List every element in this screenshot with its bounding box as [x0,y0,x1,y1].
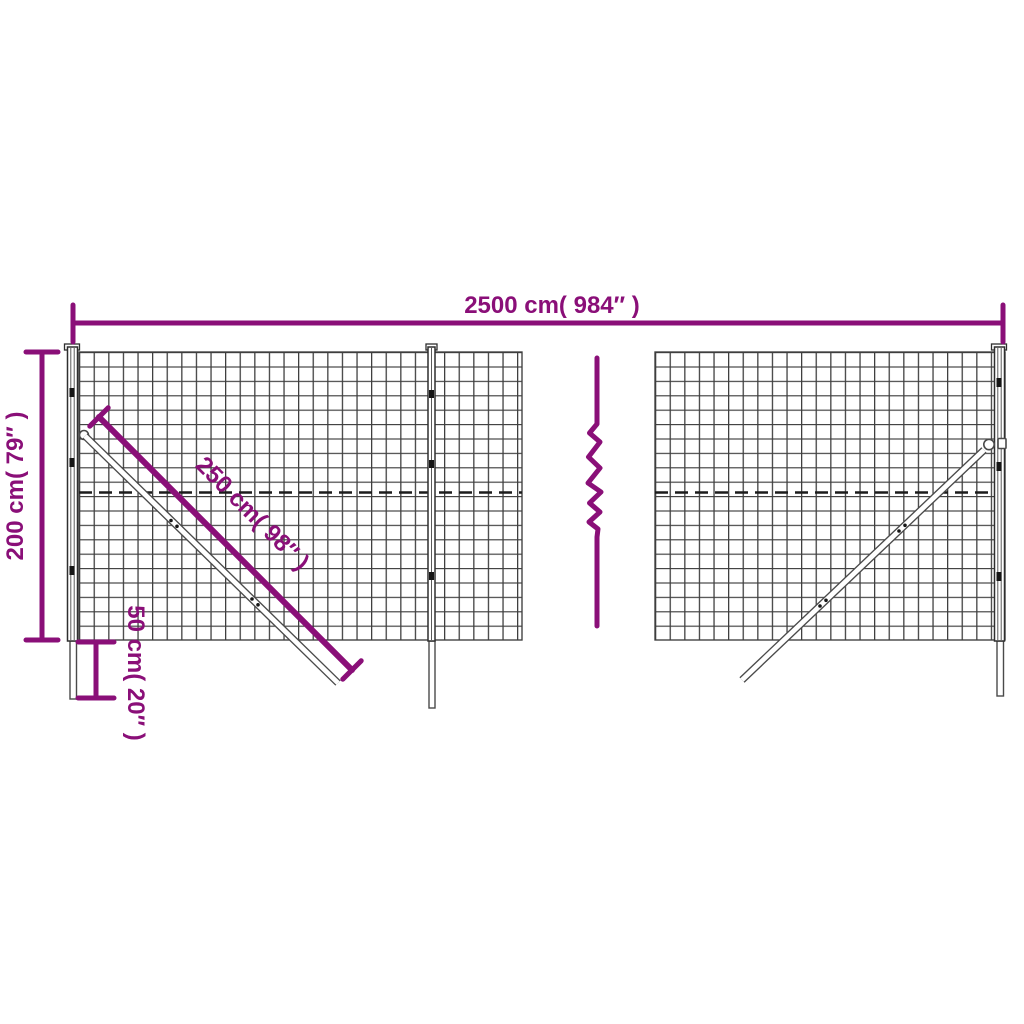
mesh-clamp [997,378,1002,387]
strut-bolt [903,524,907,528]
mesh-clamp [70,458,75,467]
diagram-canvas: 2500 cm( 984″ ) 200 cm( 79″ ) 250 cm( 98… [0,0,1024,1024]
post-underground-left [70,641,77,699]
strut-bolt [256,603,260,607]
strut-bolt [175,525,179,529]
mesh-clamp [429,572,434,580]
width-dimension-label: 2500 cm( 984″ ) [464,292,640,319]
post-underground-right [997,641,1004,696]
height-dimension-label: 200 cm( 79″ ) [2,412,29,561]
mesh-clamp [997,462,1002,471]
post-underground-middle [429,641,435,708]
mesh-clamp [997,572,1002,581]
post-body-right [995,347,1005,641]
strut-bolt [824,599,828,603]
depth-dimension-label: 50 cm( 20″ ) [122,605,149,741]
mesh-clamp [429,460,434,468]
mesh-clamp [429,390,434,398]
strut-post-bracket [998,439,1006,449]
strut-mount-ring [984,439,994,449]
strut-bolt [250,597,254,601]
strut-bolt [818,604,822,608]
strut-bolt [169,519,173,523]
mesh-clamp [70,388,75,397]
strut-bolt [897,529,901,533]
mesh-clamp [70,566,75,575]
fence-dimension-diagram: 2500 cm( 984″ ) 200 cm( 79″ ) 250 cm( 98… [0,0,1024,1024]
